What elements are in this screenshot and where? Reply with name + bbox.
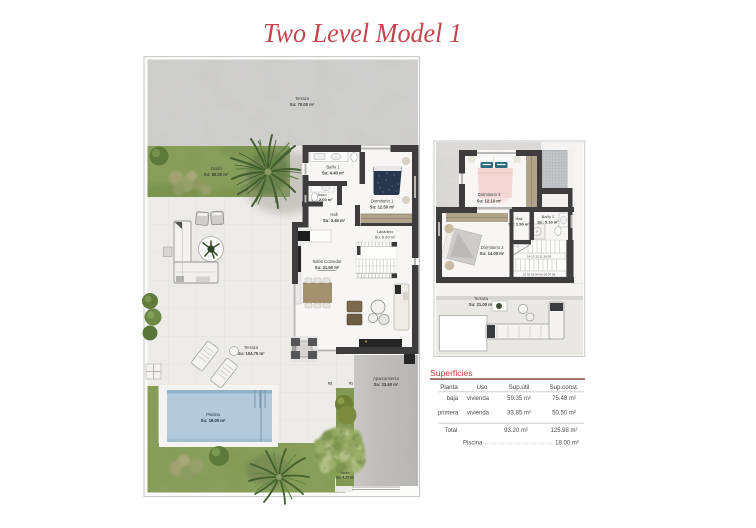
svg-text:Salón Comedor: Salón Comedor — [312, 259, 342, 264]
svg-text:Piscina: Piscina — [463, 441, 483, 447]
svg-text:Dormitorio 3: Dormitorio 3 — [478, 192, 501, 197]
svg-text:125.98 m²: 125.98 m² — [550, 428, 577, 434]
svg-text:02: 02 — [328, 382, 332, 386]
svg-text:Su: 5.20 m²: Su: 5.20 m² — [375, 235, 396, 240]
svg-text:Baño 2: Baño 2 — [542, 214, 555, 219]
svg-text:Lavadero: Lavadero — [377, 229, 394, 234]
svg-text:Sup.útil: Sup.útil — [509, 384, 530, 391]
svg-text:Su: 80.00 m²: Su: 80.00 m² — [204, 172, 229, 177]
svg-text:Jardín: Jardín — [340, 471, 350, 475]
svg-text:Su: 21.50 m²: Su: 21.50 m² — [315, 265, 340, 270]
svg-text:33.85 m²: 33.85 m² — [507, 411, 531, 417]
svg-text:Piscina: Piscina — [206, 412, 220, 417]
svg-text:Two Level Model 1: Two Level Model 1 — [263, 18, 462, 48]
svg-text:Dormitorio 2: Dormitorio 2 — [481, 245, 504, 250]
svg-text:14 13 12 11 10 09: 14 13 12 11 10 09 — [527, 255, 551, 259]
svg-text:Su: 23.60 m²: Su: 23.60 m² — [374, 382, 399, 387]
svg-text:01 02 03 04 05 06 07 08: 01 02 03 04 05 06 07 08 — [523, 273, 556, 277]
svg-text:18.00 m²: 18.00 m² — [555, 441, 579, 447]
svg-text:vivienda: vivienda — [467, 396, 490, 402]
svg-text:Terraza: Terraza — [244, 345, 259, 350]
svg-text:Total: Total — [445, 428, 458, 434]
svg-text:75.48 m²: 75.48 m² — [552, 396, 576, 402]
svg-text:Planta: Planta — [440, 384, 458, 391]
svg-text:Su: 21.00 m²: Su: 21.00 m² — [469, 302, 494, 307]
svg-text:Su: 4.40 m²: Su: 4.40 m² — [322, 171, 345, 176]
svg-text:Su: 70.00 m²: Su: 70.00 m² — [290, 102, 315, 107]
svg-text:Terraza: Terraza — [474, 296, 489, 301]
svg-text:Su: 14.00 m²: Su: 14.00 m² — [480, 251, 505, 256]
svg-text:Uso: Uso — [476, 384, 488, 391]
svg-text:Baño 1: Baño 1 — [326, 165, 340, 170]
svg-text:59.35 m²: 59.35 m² — [507, 396, 531, 402]
svg-text:Hall: Hall — [516, 216, 523, 221]
svg-text:primera: primera — [438, 411, 459, 417]
svg-text:Sup.const.: Sup.const. — [549, 384, 579, 391]
svg-text:baja: baja — [447, 396, 459, 402]
svg-text:Superficies: Superficies — [430, 368, 473, 378]
svg-text:Jardín: Jardín — [210, 166, 222, 171]
svg-text:Dormitorio 1: Dormitorio 1 — [371, 199, 394, 204]
svg-text:Su: 4.25 m²: Su: 4.25 m² — [336, 476, 355, 480]
svg-text:Terraza: Terraza — [295, 96, 310, 101]
svg-text:Su: 12.10 m²: Su: 12.10 m² — [477, 199, 502, 204]
svg-text:Su: 18.00 m²: Su: 18.00 m² — [201, 418, 226, 423]
svg-text:Su: 3.45 m²: Su: 3.45 m² — [323, 218, 346, 223]
svg-text:01: 01 — [349, 382, 353, 386]
svg-text:93.20 m²: 93.20 m² — [504, 428, 528, 434]
svg-text:50.50 m²: 50.50 m² — [552, 411, 576, 417]
svg-text:Hall: Hall — [330, 212, 337, 217]
svg-text:Aparcamiento: Aparcamiento — [373, 376, 400, 381]
svg-text:Su: 12.50 m²: Su: 12.50 m² — [370, 205, 395, 210]
svg-text:Su: 104.75 m²: Su: 104.75 m² — [238, 351, 266, 356]
svg-text:vivienda: vivienda — [467, 411, 490, 417]
